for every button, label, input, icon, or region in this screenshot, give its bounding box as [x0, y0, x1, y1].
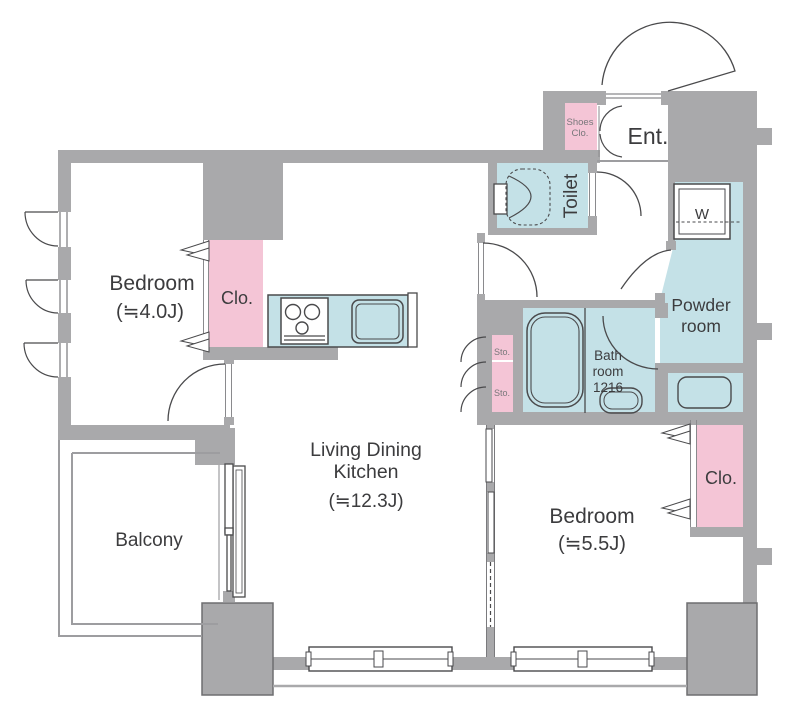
bedroom1-door-icon [168, 364, 232, 421]
bathroom-label-2: room [593, 364, 624, 379]
walls [58, 91, 772, 695]
wall-tab-3 [757, 548, 772, 565]
closet1-label: Clo. [221, 288, 253, 308]
bedroom1-size: (≒4.0J) [116, 301, 184, 323]
wall-storage-bath-divider [513, 308, 523, 412]
wall-tab-1 [757, 128, 772, 145]
wall-tab-2 [757, 323, 772, 340]
window-gap-1 [56, 212, 73, 247]
shoes-closet-label-2: Clo. [572, 128, 589, 139]
wall-bed1-door-jamb-top [224, 356, 234, 364]
entrance-door-icon [602, 22, 735, 91]
wall-powder-jamb-top [666, 241, 676, 250]
wall-bath-powder-lower [655, 369, 668, 412]
closet2-door-icon [662, 420, 697, 527]
bedroom1-label: Bedroom [109, 272, 194, 295]
wall-hall-jamb-top [477, 233, 485, 243]
wall-ent-jamb-right [661, 91, 668, 105]
ldk-size: (≒12.3J) [328, 491, 403, 512]
wall-shoes-top [543, 91, 597, 103]
balcony-sliding-door-icon [225, 464, 245, 597]
wall-balcony-door-column [223, 428, 235, 465]
floor-plan: Bedroom (≒4.0J) Clo. Shoes Clo. Ent. Toi… [0, 0, 800, 721]
balcony-label: Balcony [115, 530, 183, 551]
wall-bath-block-south [477, 412, 757, 425]
wall-window-jamb-3b [58, 377, 71, 384]
wall-below-closet2 [690, 527, 743, 537]
wall-partition-block-0 [486, 425, 495, 429]
ldk-label-1: Living Dining [310, 439, 422, 461]
window-bedroom2-icon [511, 647, 654, 671]
toilet-door-icon [590, 172, 642, 216]
wall-window-jamb-2a [58, 273, 71, 280]
wall-pillar-top [203, 150, 283, 240]
powder-door-icon [621, 250, 671, 289]
wall-window-jamb-3a [58, 336, 71, 343]
hall-door-icon [479, 243, 538, 297]
wall-shoes-left [543, 103, 565, 150]
sliding-panel-2 [488, 492, 494, 553]
wall-toilet-top [488, 150, 600, 163]
wall-window-jamb-2b [58, 313, 71, 320]
wall-ent-jamb-left [597, 91, 606, 105]
powder-room-label-2: room [681, 316, 721, 336]
wall-toilet-jamb-top [588, 163, 597, 173]
pillar-south-west [202, 603, 273, 695]
window-gap-3 [56, 343, 73, 377]
wall-entrance-right-block [668, 91, 757, 182]
kitchen-counter [268, 293, 417, 347]
ldk-label-2: Kitchen [333, 461, 398, 483]
bedroom2-label: Bedroom [549, 505, 634, 528]
wall-partition-block-2 [486, 553, 495, 562]
storage2-label: Sto. [494, 388, 510, 398]
entrance-label: Ent. [628, 123, 669, 149]
bathroom-label-3: 1216 [593, 380, 623, 395]
shoes-closet-door-icon [599, 106, 622, 157]
bathroom-label-1: Bath [594, 348, 622, 363]
wall-under-counter [203, 347, 338, 360]
wall-powder-jamb-bottom [655, 293, 665, 303]
pillar-south-east [687, 603, 757, 695]
wall-powder-divider [655, 363, 743, 373]
powder-room-label-1: Powder [671, 295, 731, 315]
closet1-door-icon [181, 240, 209, 352]
wall-partition-block-3 [486, 627, 495, 658]
wall-window-jamb-1b [58, 247, 71, 254]
wall-partition-block-1 [486, 482, 495, 492]
bedroom2-size: (≒5.5J) [558, 533, 626, 555]
wall-toilet-jamb-bottom [588, 216, 597, 228]
wall-bedroom1-bottom [58, 425, 230, 440]
closet2-label: Clo. [705, 468, 737, 488]
washer-label: W [695, 206, 710, 223]
window-ldk-icon [306, 647, 453, 671]
bedroom1-windows [24, 212, 73, 377]
wall-storage-door-jamb-top [483, 330, 491, 337]
shoes-closet-label-1: Shoes [567, 117, 594, 128]
stove-icon [281, 298, 328, 344]
wall-window-jamb-1a [58, 205, 71, 212]
casement-window-icon [24, 212, 58, 377]
window-gap-2 [56, 280, 73, 313]
storage1-label: Sto. [494, 347, 510, 357]
floor-plan-page: Bedroom (≒4.0J) Clo. Shoes Clo. Ent. Toi… [0, 0, 800, 721]
wall-toilet-bottom [488, 228, 597, 235]
wall-bed1-door-jamb-bottom [224, 417, 234, 425]
wall-storage-door-jamb-bottom [483, 406, 491, 413]
sliding-panel-1 [486, 429, 492, 482]
bathroom-floor [523, 308, 655, 413]
wall-bath-door-jamb [655, 303, 668, 318]
ldk-bedroom2-partition [486, 425, 495, 657]
counter-end-panel [408, 293, 417, 347]
toilet-label: Toilet [561, 173, 582, 218]
